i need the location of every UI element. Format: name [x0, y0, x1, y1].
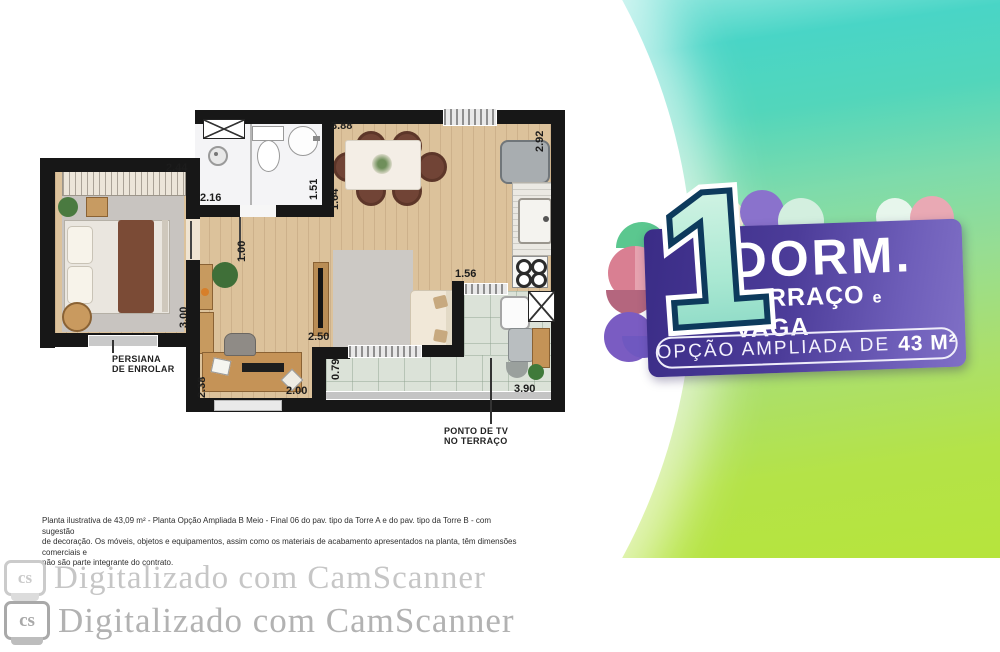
kitchen-top-window — [443, 108, 497, 126]
dim-label: 2.00 — [286, 385, 307, 397]
sink-faucet — [543, 216, 549, 222]
dim-label: 1.56 — [455, 268, 476, 280]
dim-label: 3.00 — [178, 307, 190, 328]
camscanner-logo-icon: cs — [4, 601, 50, 640]
feature-and: e — [872, 289, 882, 306]
callout-persiana-line1: PERSIANA — [112, 354, 175, 364]
bedroom-door-leaf — [190, 221, 192, 259]
washing-machine — [508, 328, 534, 362]
toilet-tank — [252, 126, 284, 141]
toilet-bowl — [257, 140, 280, 172]
desk-monitor — [242, 363, 284, 372]
dining-chair — [417, 152, 447, 182]
laundry-tub — [500, 296, 530, 330]
option-area-value: 43 M² — [898, 331, 957, 357]
camscanner-logo-icon: cs — [4, 560, 46, 596]
camscanner-logo-tab — [11, 593, 39, 601]
dim-label: 1.00 — [236, 241, 248, 262]
service-plant — [528, 364, 544, 380]
bathroom-sink — [288, 126, 318, 156]
wall-segment — [195, 110, 565, 124]
camscanner-logo-text: cs — [18, 568, 32, 588]
callout-tv: PONTO DE TV NO TERRAÇO — [444, 426, 508, 446]
dim-label: 1.64 — [329, 189, 341, 210]
camscanner-logo-text: cs — [19, 610, 35, 632]
dim-label: 2.50 — [308, 331, 329, 343]
wall-segment — [420, 345, 464, 357]
bathroom-x-window — [203, 119, 245, 139]
bedroom-window-blind — [88, 335, 158, 347]
dim-label: 1.51 — [308, 179, 320, 200]
wall-segment — [312, 347, 350, 359]
wall-segment — [40, 158, 55, 348]
sink-faucet-bath — [313, 136, 320, 141]
callout-tv-line2: NO TERRAÇO — [444, 436, 508, 446]
callout-persiana-line2: DE ENROLAR — [112, 364, 175, 374]
camscanner-watermark: cs Digitalizado com CamScanner — [4, 560, 486, 597]
service-x-window — [528, 291, 555, 322]
bed-pillow — [67, 266, 93, 304]
callout-leader-line — [112, 340, 114, 353]
hall-sideboard — [198, 264, 213, 310]
camscanner-watermark-text: Digitalizado com CamScanner — [54, 560, 486, 597]
round-pouf — [62, 302, 92, 332]
tv-screen — [318, 268, 323, 328]
dim-label: 2.38 — [196, 377, 208, 398]
bed-blanket — [118, 220, 154, 313]
nightstand — [86, 197, 108, 217]
scanned-page: DORM. TERRAÇO e VAGA OPÇÃO AMPLIADA DE 4… — [0, 0, 1000, 652]
camscanner-logo-tab — [11, 637, 43, 645]
terrace-sliding-door — [348, 345, 422, 358]
dim-label: 2.44 — [166, 162, 187, 174]
dim-label: 2.92 — [534, 131, 546, 152]
sideboard-decor — [201, 288, 209, 296]
service-sliding-door — [464, 283, 508, 295]
callout-leader-line — [490, 358, 492, 424]
table-centerpiece-plant — [372, 154, 392, 174]
shower-head — [208, 146, 228, 166]
stove-burner — [531, 272, 547, 288]
dim-label: 2.16 — [200, 192, 221, 204]
wall-segment — [551, 110, 565, 412]
disclaimer-line1: Planta ilustrativa de 43,09 m² - Planta … — [42, 516, 522, 537]
office-window — [214, 400, 282, 411]
sofa-pillow — [433, 329, 448, 343]
stove-burner — [516, 272, 532, 288]
disclaimer-line2: de decoração. Os móveis, objetos e equip… — [42, 537, 522, 558]
service-shelf — [532, 328, 550, 368]
office-shelf — [198, 312, 214, 354]
bathroom-door-opening — [240, 205, 276, 217]
bed-foot-bench — [162, 220, 168, 312]
number-one: 1 — [655, 159, 772, 360]
camscanner-watermark: cs Digitalizado com CamScanner — [4, 601, 515, 641]
hall-plant — [212, 262, 238, 288]
callout-tv-line1: PONTO DE TV — [444, 426, 508, 436]
bedroom-plant — [58, 197, 78, 217]
bedroom-door-opening — [186, 219, 200, 260]
camscanner-watermark-text: Digitalizado com CamScanner — [58, 601, 515, 641]
living-rug — [333, 250, 413, 347]
floor-plan: 2.44 2.16 1.51 3.88 2.92 1.64 1.00 3.00 … — [0, 0, 600, 560]
desk-chair — [224, 333, 256, 356]
callout-persiana: PERSIANA DE ENROLAR — [112, 354, 175, 374]
big-number-one: 1 1 — [628, 159, 801, 360]
dim-label: 0.79 — [330, 359, 342, 380]
bed-pillow — [67, 226, 93, 264]
shower-drain — [214, 152, 218, 156]
dim-label: 3.88 — [331, 120, 352, 132]
dim-label: 3.90 — [514, 383, 535, 395]
